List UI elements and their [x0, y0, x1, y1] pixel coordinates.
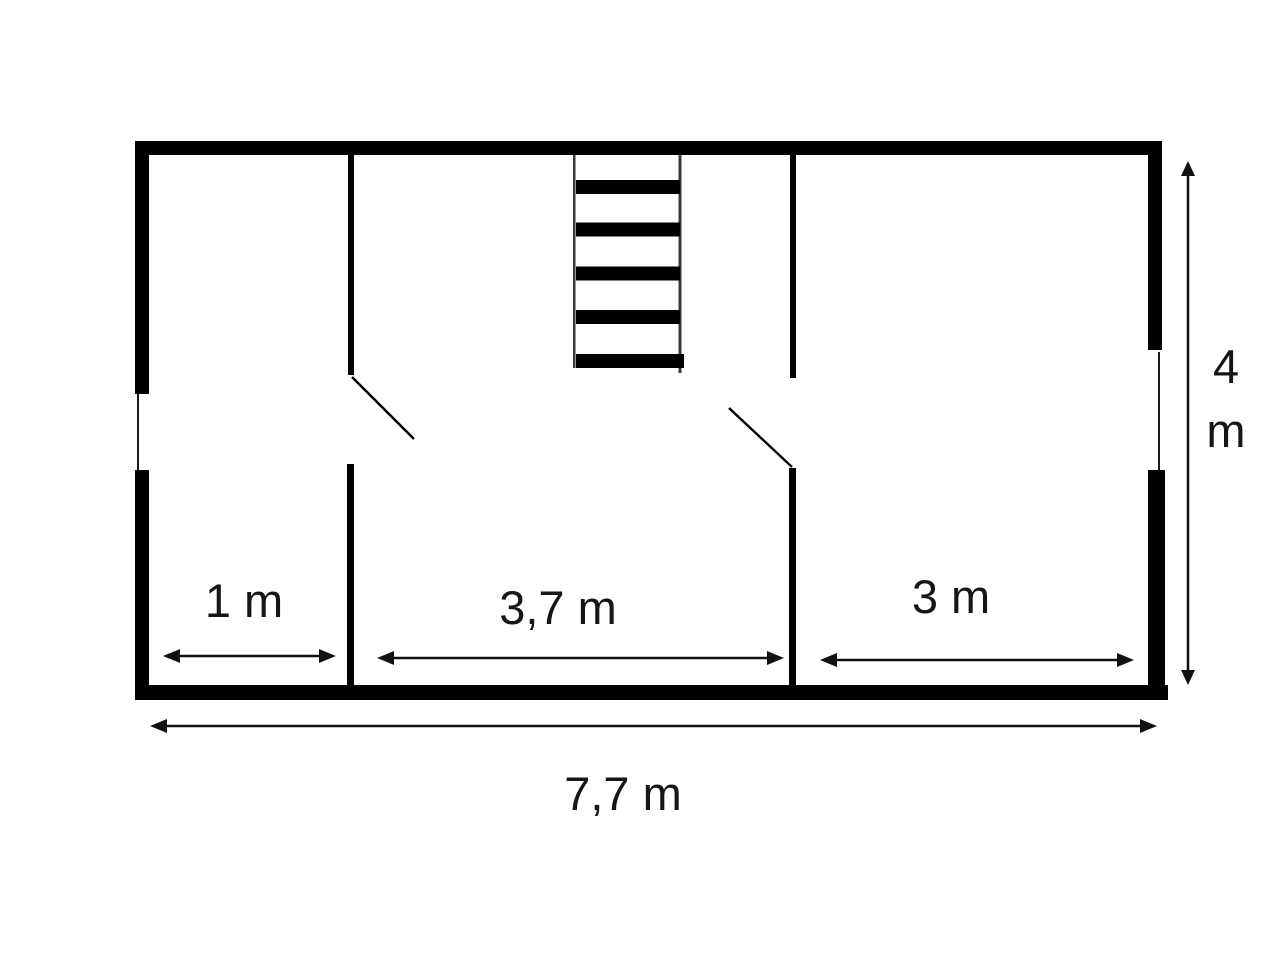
svg-text:7,7 m: 7,7 m	[564, 767, 682, 820]
svg-text:1 m: 1 m	[205, 574, 283, 627]
svg-text:m: m	[1206, 404, 1245, 457]
svg-text:3 m: 3 m	[912, 570, 990, 623]
svg-text:4: 4	[1213, 340, 1239, 393]
svg-text:3,7 m: 3,7 m	[499, 581, 617, 634]
